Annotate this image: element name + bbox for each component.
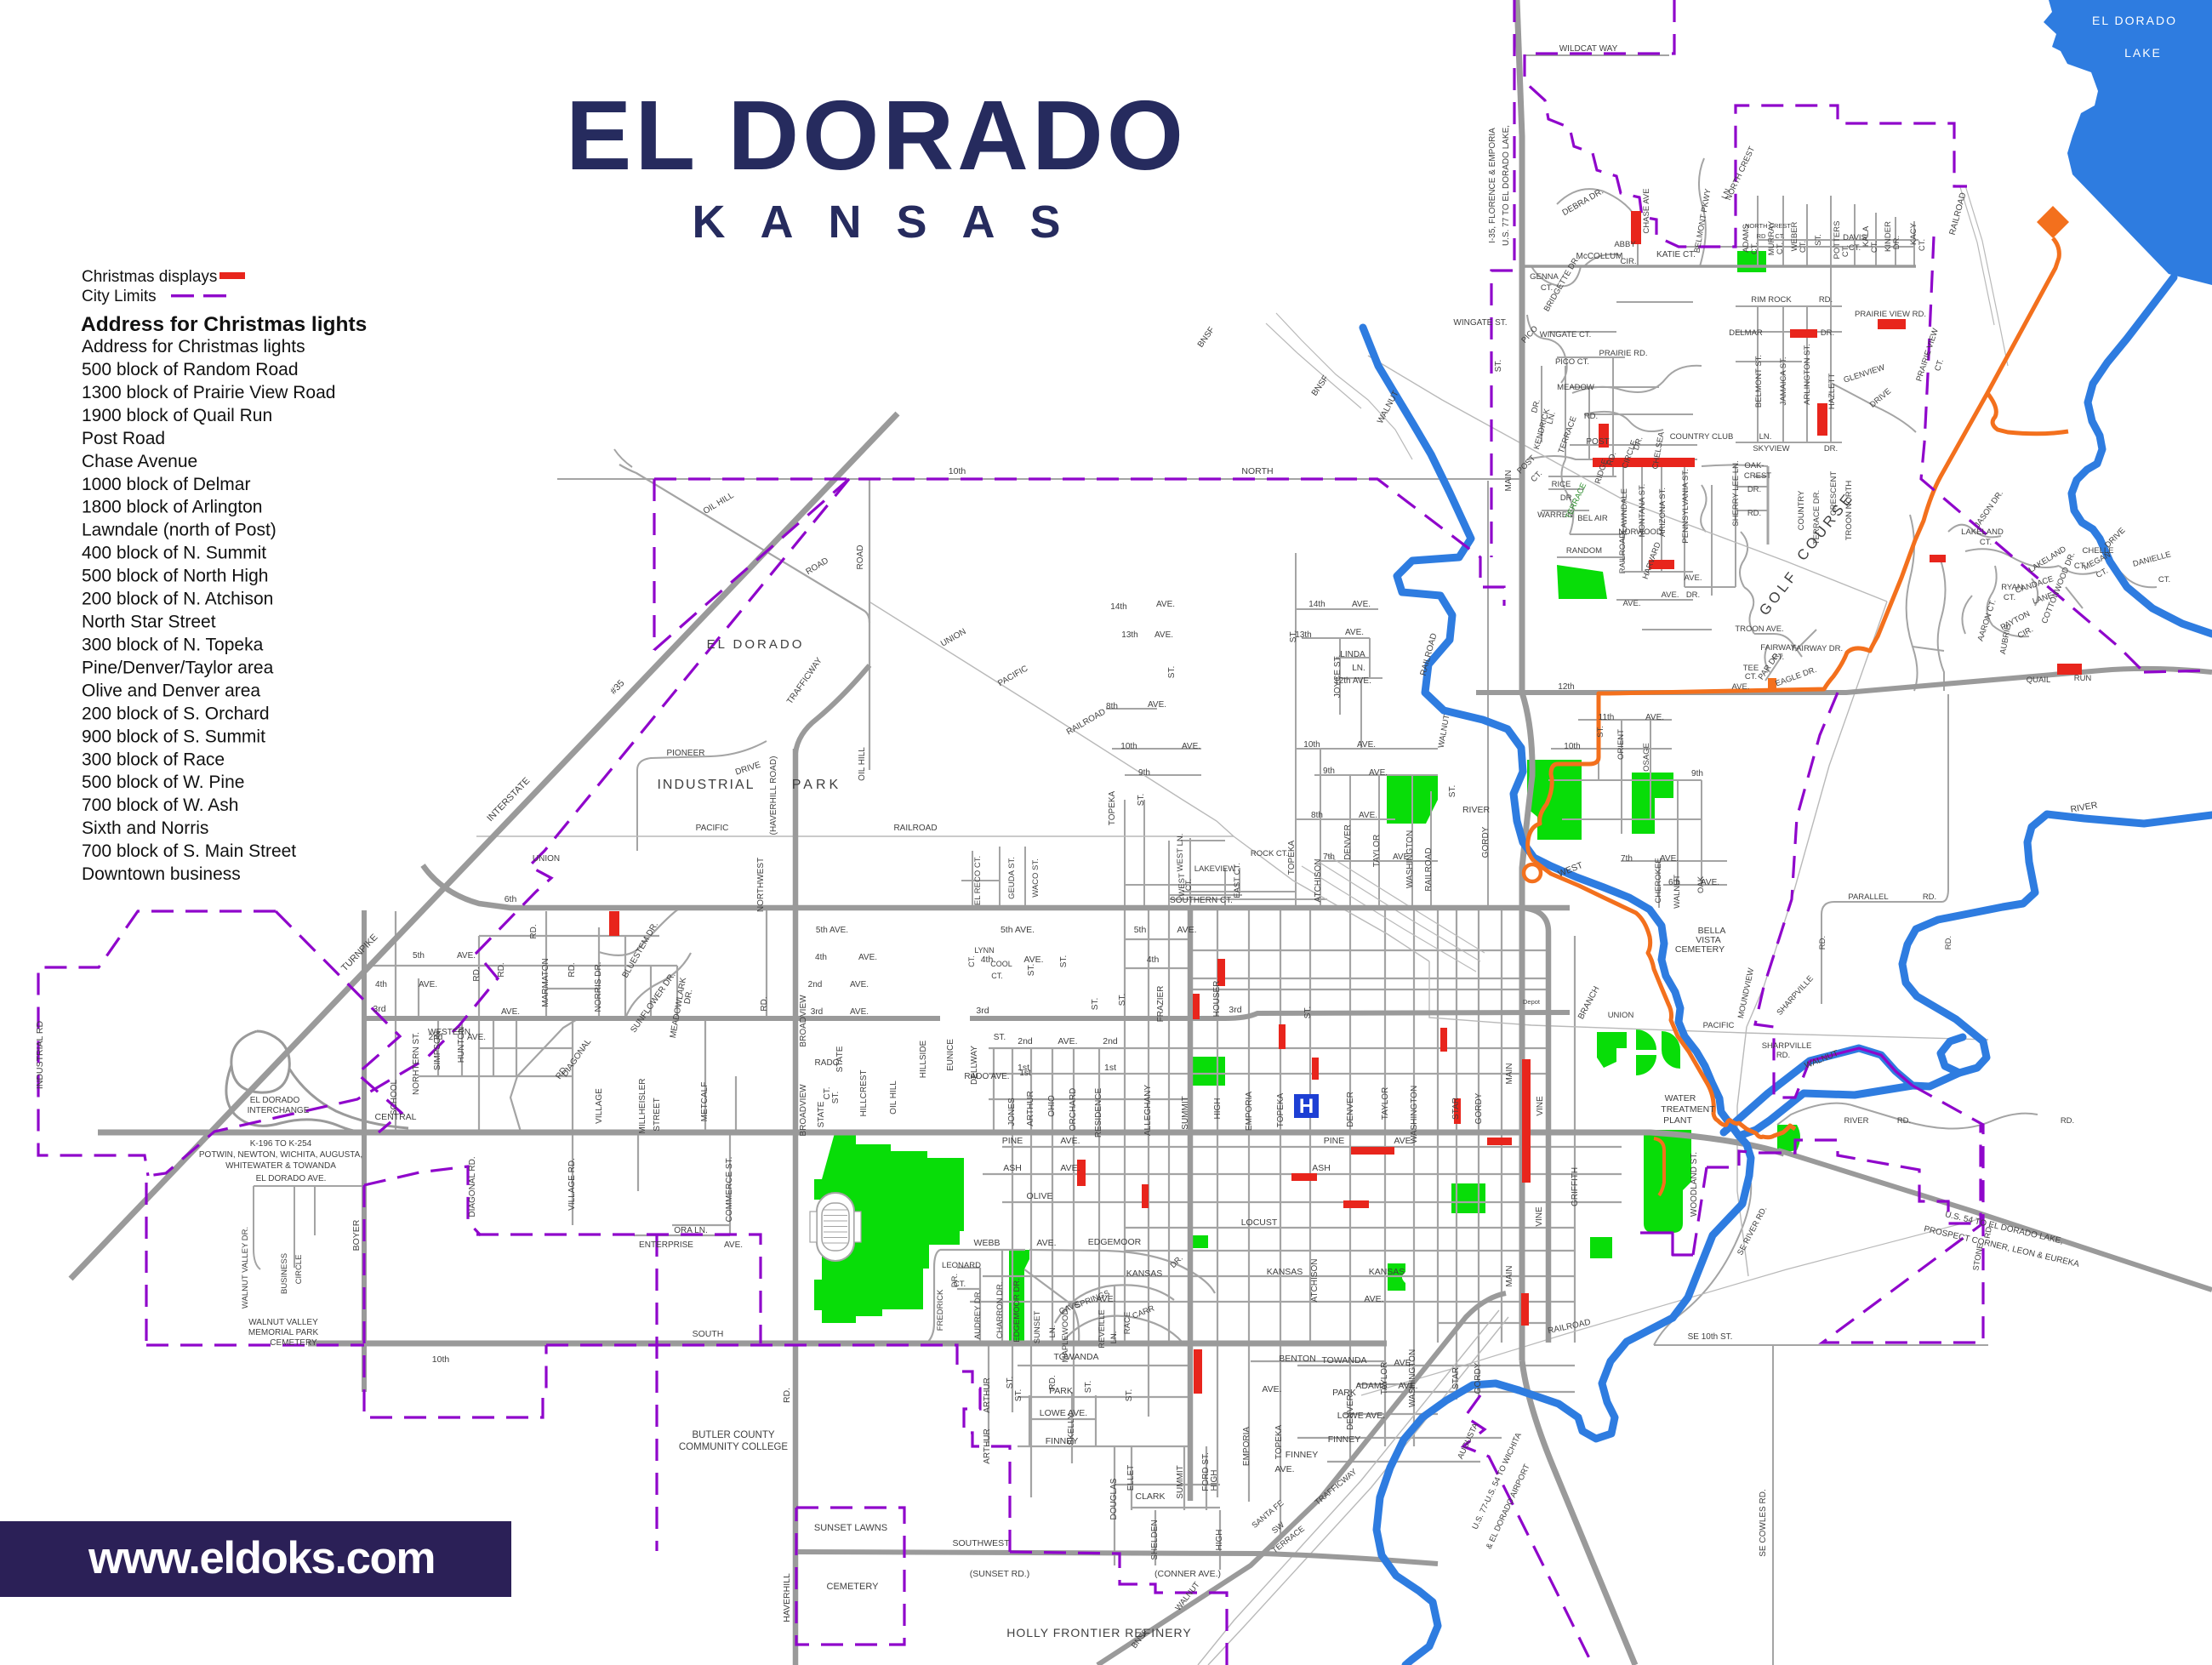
svg-text:ROAD: ROAD — [804, 556, 829, 577]
svg-text:VINE: VINE — [1535, 1206, 1544, 1227]
svg-text:Sixth and Norris: Sixth and Norris — [82, 818, 208, 838]
svg-text:EDGEMOOR: EDGEMOOR — [1088, 1237, 1142, 1247]
svg-text:AVE.: AVE. — [1352, 600, 1371, 609]
svg-text:10th: 10th — [1564, 742, 1580, 751]
svg-text:LEONARD: LEONARD — [942, 1261, 981, 1270]
svg-text:10th: 10th — [1303, 740, 1320, 750]
svg-text:1st: 1st — [1019, 1069, 1031, 1078]
svg-text:DR.: DR. — [1821, 328, 1834, 338]
svg-text:AVE.: AVE. — [1274, 1464, 1294, 1474]
svg-text:(HAVERHILL ROAD): (HAVERHILL ROAD) — [769, 756, 778, 835]
svg-text:SCHOOL: SCHOOL — [390, 1079, 399, 1115]
svg-text:ST.: ST. — [1494, 360, 1503, 372]
svg-text:CT.: CT. — [1841, 245, 1850, 257]
svg-text:DENVER: DENVER — [1343, 824, 1353, 860]
svg-text:CREST: CREST — [1744, 471, 1771, 481]
svg-text:1300 block of Prairie View Roa: 1300 block of Prairie View Road — [82, 383, 335, 402]
svg-text:HIGH: HIGH — [1215, 1530, 1224, 1551]
svg-text:PAR DR.: PAR DR. — [1757, 650, 1783, 681]
svg-text:AVE.: AVE. — [1262, 1384, 1281, 1394]
svg-text:RAILROAD: RAILROAD — [893, 824, 937, 833]
svg-text:EMPORIA: EMPORIA — [1242, 1427, 1251, 1466]
svg-text:AVE.: AVE. — [1685, 573, 1702, 583]
svg-text:CT.: CT. — [1541, 283, 1553, 293]
svg-text:CT.: CT. — [1750, 242, 1759, 254]
svg-text:JAMAICA ST.: JAMAICA ST. — [1779, 356, 1788, 405]
svg-text:4th: 4th — [1147, 955, 1160, 965]
svg-text:PRAIRIE RD.: PRAIRIE RD. — [1599, 349, 1647, 358]
svg-text:CT.: CT. — [1799, 241, 1808, 253]
svg-text:3rd: 3rd — [1229, 1005, 1241, 1015]
svg-text:LAKEVIEW: LAKEVIEW — [1194, 864, 1236, 874]
svg-text:COUNTRY CLUB: COUNTRY CLUB — [1670, 432, 1734, 442]
svg-text:HIGH: HIGH — [1210, 1470, 1219, 1491]
svg-text:EL RECO CT.: EL RECO CT. — [973, 856, 983, 905]
svg-text:COMMERCE ST.: COMMERCE ST. — [725, 1157, 734, 1223]
svg-text:GOLF: GOLF — [1756, 567, 1801, 619]
svg-text:2nd: 2nd — [808, 980, 823, 989]
svg-text:1800 block of Arlington: 1800 block of Arlington — [82, 498, 262, 517]
svg-text:RIVER: RIVER — [1462, 805, 1491, 815]
svg-text:CEMETERY: CEMETERY — [270, 1338, 317, 1348]
svg-text:BEL AIR: BEL AIR — [1577, 514, 1608, 523]
svg-text:TREATMENT: TREATMENT — [1661, 1104, 1715, 1115]
svg-text:1900 block of Quail Run: 1900 block of Quail Run — [82, 406, 272, 425]
svg-text:SUNSET LAWNS: SUNSET LAWNS — [814, 1523, 887, 1533]
svg-text:BELMONT ST.: BELMONT ST. — [1754, 355, 1764, 408]
svg-text:RD.: RD. — [1747, 509, 1761, 518]
svg-text:MILLHEISLER: MILLHEISLER — [638, 1078, 647, 1133]
svg-text:NORTHWEST: NORTHWEST — [756, 858, 766, 912]
svg-text:CT.: CT. — [1529, 469, 1544, 484]
svg-text:4th: 4th — [375, 980, 387, 989]
svg-text:3rd: 3rd — [373, 1004, 385, 1014]
svg-text:LAWNDALE: LAWNDALE — [1620, 488, 1629, 533]
svg-text:RD.: RD. — [782, 1388, 792, 1403]
svg-text:BRANCH: BRANCH — [1576, 985, 1602, 1021]
svg-text:RD.: RD. — [1897, 1116, 1911, 1126]
svg-text:3rd: 3rd — [976, 1006, 989, 1016]
svg-text:500 block of North High: 500 block of North High — [82, 567, 268, 586]
svg-text:HILLCREST: HILLCREST — [859, 1069, 869, 1116]
svg-text:OLIVE: OLIVE — [1027, 1191, 1053, 1201]
svg-text:PICO CT.: PICO CT. — [1555, 357, 1589, 367]
svg-text:2nd: 2nd — [429, 1033, 443, 1042]
svg-text:TAYLOR: TAYLOR — [1381, 1087, 1390, 1120]
svg-text:12th: 12th — [1558, 682, 1574, 692]
svg-text:ATCHISON: ATCHISON — [1314, 859, 1323, 903]
svg-text:TOWANDA: TOWANDA — [1321, 1355, 1366, 1366]
svg-text:TROON NORTH: TROON NORTH — [1844, 481, 1854, 541]
svg-text:(CONNER AVE.): (CONNER AVE.) — [1154, 1569, 1221, 1579]
svg-text:10th: 10th — [1120, 742, 1137, 751]
svg-text:OIL HILL: OIL HILL — [702, 491, 736, 516]
svg-text:SHARPVILLE: SHARPVILLE — [1775, 974, 1815, 1018]
svg-text:TERRACE DR.: TERRACE DR. — [1812, 490, 1821, 545]
svg-text:ROAD: ROAD — [856, 545, 865, 570]
svg-text:CLARK: CLARK — [1135, 1491, 1165, 1502]
svg-text:(SUNSET RD.): (SUNSET RD.) — [970, 1569, 1029, 1579]
svg-text:700 block of W. Ash: 700 block of W. Ash — [82, 795, 238, 815]
svg-text:CT.: CT. — [1933, 358, 1946, 373]
svg-text:6th: 6th — [1668, 878, 1680, 887]
svg-text:INTERCHANGE: INTERCHANGE — [248, 1106, 310, 1115]
svg-text:LN.: LN. — [1759, 432, 1772, 442]
svg-text:FINNEY: FINNEY — [1328, 1434, 1361, 1445]
svg-text:RIVER: RIVER — [2070, 800, 2099, 814]
svg-text:MEMORIAL PARK: MEMORIAL PARK — [248, 1328, 319, 1337]
svg-text:Pine/Denver/Taylor area: Pine/Denver/Taylor area — [82, 658, 274, 677]
svg-text:ST.: ST. — [1448, 785, 1457, 797]
svg-text:WACO ST.: WACO ST. — [1031, 858, 1040, 898]
svg-text:AVE.: AVE. — [850, 980, 869, 989]
svg-text:CHASE AVE: CHASE AVE — [1642, 188, 1651, 233]
svg-text:RAILROAD: RAILROAD — [1424, 847, 1434, 891]
svg-text:CHEROKEE: CHEROKEE — [1654, 858, 1663, 903]
svg-text:5th: 5th — [1134, 925, 1147, 935]
svg-text:DR.: DR. — [683, 989, 695, 1005]
svg-text:MEADOWLARK: MEADOWLARK — [669, 977, 688, 1039]
svg-text:11th: 11th — [1599, 713, 1615, 722]
svg-text:7th: 7th — [1323, 852, 1335, 862]
svg-text:RACE: RACE — [1123, 1312, 1132, 1334]
svg-text:ADAMS: ADAMS — [1355, 1381, 1387, 1391]
svg-text:AVE.: AVE. — [467, 1033, 486, 1042]
svg-text:GORDY: GORDY — [1474, 1362, 1483, 1394]
svg-text:WHITEWATER & TOWANDA: WHITEWATER & TOWANDA — [225, 1161, 336, 1171]
svg-text:2nd: 2nd — [1103, 1036, 1118, 1046]
svg-text:SHARPVILLE: SHARPVILLE — [1762, 1041, 1812, 1051]
svg-text:OIL HILL: OIL HILL — [858, 747, 867, 781]
svg-text:TRAFFICWAY: TRAFFICWAY — [1314, 1467, 1360, 1508]
svg-text:9th: 9th — [1138, 768, 1150, 778]
svg-text:SE 10th ST.: SE 10th ST. — [1688, 1332, 1733, 1342]
svg-text:RADO: RADO — [815, 1058, 840, 1068]
svg-text:RAILROAD: RAILROAD — [1618, 533, 1628, 574]
svg-text:HOLLY FRONTIER REFINERY: HOLLY FRONTIER REFINERY — [1006, 1626, 1191, 1639]
svg-text:DR.: DR. — [1892, 236, 1901, 249]
svg-text:TROON AVE.: TROON AVE. — [1735, 624, 1783, 634]
svg-text:LOWE AVE.: LOWE AVE. — [1040, 1408, 1087, 1418]
svg-text:COMMUNITY COLLEGE: COMMUNITY COLLEGE — [679, 1442, 789, 1452]
svg-text:BLUESTEM DR.: BLUESTEM DR. — [621, 921, 660, 980]
svg-text:AVE.: AVE. — [457, 951, 476, 961]
svg-text:RESIDENCE: RESIDENCE — [1094, 1088, 1103, 1138]
svg-text:ST.: ST. — [1059, 955, 1069, 967]
svg-text:EL DORADO: EL DORADO — [250, 1096, 300, 1105]
svg-text:TOPEKA: TOPEKA — [1276, 1092, 1286, 1127]
svg-text:DRIVE: DRIVE — [1868, 387, 1893, 410]
svg-text:ARLINGTON ST.: ARLINGTON ST. — [1803, 344, 1812, 405]
svg-text:SE COWLES RD.: SE COWLES RD. — [1759, 1489, 1768, 1556]
svg-text:SUNSET: SUNSET — [1033, 1311, 1042, 1344]
svg-text:BUTLER COUNTY: BUTLER COUNTY — [692, 1430, 774, 1440]
svg-text:AVE.: AVE. — [1357, 740, 1376, 750]
svg-text:DRIVE: DRIVE — [734, 761, 762, 778]
svg-text:CIRCLE: CIRCLE — [294, 1255, 304, 1285]
svg-text:5th: 5th — [413, 951, 425, 961]
svg-text:MARMATON: MARMATON — [541, 958, 550, 1006]
svg-text:Christmas displays: Christmas displays — [82, 268, 217, 286]
svg-text:ST.: ST. — [1596, 726, 1605, 738]
svg-text:Lawndale (north of Post): Lawndale (north of Post) — [82, 521, 276, 540]
svg-text:7th: 7th — [1621, 854, 1633, 864]
svg-text:OSAGE: OSAGE — [1642, 743, 1651, 772]
svg-text:KANSAS: KANSAS — [1267, 1267, 1303, 1277]
svg-text:PINE: PINE — [1002, 1136, 1023, 1146]
svg-text:OHIO: OHIO — [1047, 1095, 1057, 1117]
svg-text:14th: 14th — [1308, 600, 1325, 609]
svg-text:AVE.: AVE. — [1701, 878, 1719, 887]
svg-text:AVE.: AVE. — [1369, 768, 1388, 778]
svg-text:AVE.: AVE. — [1036, 1238, 1056, 1248]
svg-text:HUNTON: HUNTON — [457, 1027, 466, 1063]
svg-text:PRAIRIE VIEW RD.: PRAIRIE VIEW RD. — [1855, 310, 1926, 319]
svg-text:DR.: DR. — [1632, 436, 1645, 452]
svg-text:AVE.: AVE. — [1154, 630, 1173, 640]
svg-text:DIAGONAL RD.: DIAGONAL RD. — [468, 1156, 477, 1217]
svg-text:AVE.: AVE. — [1177, 925, 1196, 935]
svg-text:SOUTHWEST: SOUTHWEST — [952, 1538, 1010, 1548]
svg-text:PARK: PARK — [792, 778, 841, 792]
svg-text:AVE.: AVE. — [1623, 599, 1641, 608]
svg-text:POST: POST — [1586, 437, 1609, 447]
svg-text:AVE.: AVE. — [1662, 590, 1679, 600]
svg-text:WILDCAT WAY: WILDCAT WAY — [1559, 44, 1618, 54]
svg-text:ARTHUR: ARTHUR — [983, 1377, 992, 1412]
svg-text:BELMONT PKWY: BELMONT PKWY — [1692, 187, 1713, 254]
svg-text:700 block of S. Main Street: 700 block of S. Main Street — [82, 841, 296, 861]
svg-text:PARALLEL: PARALLEL — [1848, 892, 1888, 902]
svg-text:INDUSTRIAL: INDUSTRIAL — [657, 778, 755, 792]
svg-text:WEBB: WEBB — [974, 1238, 1001, 1248]
svg-text:ST.: ST. — [1289, 630, 1298, 642]
svg-text:ST.: ST. — [1084, 1381, 1093, 1393]
svg-text:COOL: COOL — [990, 960, 1012, 968]
svg-text:EDGEMOOR DR.: EDGEMOOR DR. — [1012, 1278, 1022, 1342]
svg-text:ELLET: ELLET — [1126, 1465, 1136, 1491]
svg-text:RICE: RICE — [1552, 480, 1571, 489]
svg-text:ST.: ST. — [1167, 666, 1177, 678]
svg-text:200 block of N. Atchison: 200 block of N. Atchison — [82, 590, 273, 609]
svg-text:WATER: WATER — [1665, 1093, 1696, 1103]
svg-text:5th AVE.: 5th AVE. — [1001, 925, 1035, 935]
svg-text:DELMAR: DELMAR — [1729, 328, 1763, 338]
svg-text:SHELDEN: SHELDEN — [1150, 1520, 1160, 1560]
svg-text:RD.: RD. — [567, 962, 577, 977]
svg-text:ST.: ST. — [1814, 234, 1823, 246]
svg-text:CT.: CT. — [1918, 239, 1927, 251]
svg-text:I-35, FLORENCE & EMPORIA: I-35, FLORENCE & EMPORIA — [1488, 128, 1497, 243]
svg-text:RD.: RD. — [2061, 1116, 2074, 1126]
svg-text:WALNUT: WALNUT — [1437, 714, 1452, 749]
svg-text:FINNEY: FINNEY — [1046, 1436, 1079, 1446]
svg-text:RD.: RD. — [1923, 892, 1936, 902]
svg-text:WINGATE ST.: WINGATE ST. — [1453, 318, 1507, 328]
svg-text:AVE.: AVE. — [1732, 682, 1750, 692]
svg-text:CT.: CT. — [967, 955, 976, 967]
svg-text:Downtown business: Downtown business — [82, 864, 241, 884]
svg-text:500 block of Random Road: 500 block of Random Road — [82, 360, 299, 379]
svg-text:METCALF: METCALF — [700, 1082, 710, 1122]
svg-text:ST.: ST. — [994, 1033, 1006, 1042]
svg-text:GEUDA ST.: GEUDA ST. — [1007, 857, 1017, 899]
svg-text:NORHTERN ST.: NORHTERN ST. — [412, 1032, 421, 1095]
svg-text:CEMETERY: CEMETERY — [1675, 944, 1725, 955]
svg-text:CT.: CT. — [2004, 593, 2015, 602]
svg-text:PACIFIC: PACIFIC — [996, 664, 1029, 688]
svg-text:AVE.: AVE. — [1359, 811, 1377, 820]
svg-text:AVE.: AVE. — [1096, 1294, 1115, 1304]
svg-text:JONES: JONES — [1007, 1098, 1017, 1126]
svg-text:ST.: ST. — [1027, 964, 1036, 976]
svg-text:ST.: ST. — [1118, 994, 1127, 1006]
svg-text:RD.: RD. — [760, 996, 769, 1011]
svg-text:Address for Christmas lights: Address for Christmas lights — [81, 313, 367, 336]
svg-text:AVE.: AVE. — [858, 953, 877, 962]
svg-text:PACIFIC: PACIFIC — [1703, 1021, 1735, 1030]
svg-text:ORCHARD: ORCHARD — [1069, 1088, 1078, 1132]
svg-text:H: H — [1299, 1095, 1314, 1118]
svg-text:ARTHUR: ARTHUR — [983, 1428, 992, 1463]
svg-text:TAYLOR: TAYLOR — [1372, 835, 1382, 868]
svg-text:AVE.: AVE. — [1182, 742, 1200, 751]
svg-text:RD.: RD. — [1818, 936, 1827, 949]
svg-text:QUAIL: QUAIL — [2027, 676, 2051, 685]
svg-text:ATCHISON: ATCHISON — [1310, 1259, 1320, 1303]
svg-text:6th: 6th — [505, 894, 517, 904]
svg-text:BNSF: BNSF — [1196, 325, 1217, 349]
svg-text:WOODLAND ST.: WOODLAND ST. — [1690, 1152, 1699, 1217]
svg-text:& EL DORADO AIRPORT: & EL DORADO AIRPORT — [1485, 1463, 1532, 1550]
svg-text:UNION: UNION — [533, 854, 560, 864]
svg-text:AVE.: AVE. — [1660, 854, 1679, 864]
svg-text:DENVER: DENVER — [1346, 1092, 1355, 1127]
svg-text:LAKELAND: LAKELAND — [1961, 527, 2004, 537]
svg-text:HILLSIDE: HILLSIDE — [919, 1040, 928, 1078]
svg-text:INDUSTRIAL RD: INDUSTRIAL RD — [35, 1021, 45, 1090]
svg-text:8th: 8th — [1311, 811, 1323, 820]
svg-text:ASH: ASH — [1003, 1163, 1022, 1173]
svg-text:AUDREY DR.: AUDREY DR. — [973, 1290, 983, 1339]
svg-text:Address for Christmas lights: Address for Christmas lights — [82, 337, 305, 356]
svg-text:U.S. 77 TO EL DORADO LAKE: U.S. 77 TO EL DORADO LAKE, — [1502, 125, 1511, 246]
svg-text:300 block of Race: 300 block of Race — [82, 750, 225, 769]
svg-text:WEST LN.: WEST LN. — [1176, 834, 1185, 872]
svg-text:NORRIS DR.: NORRIS DR. — [594, 962, 603, 1012]
svg-text:K-196 TO K-254: K-196 TO K-254 — [250, 1139, 312, 1149]
svg-text:CIR.: CIR. — [2016, 624, 2035, 641]
svg-text:CT.: CT. — [954, 1280, 966, 1289]
svg-text:9th: 9th — [1323, 767, 1335, 776]
svg-text:DANIELLE: DANIELLE — [2132, 550, 2172, 569]
svg-text:BROADVIEW: BROADVIEW — [799, 995, 808, 1047]
svg-text:OIL HILL: OIL HILL — [889, 1081, 898, 1115]
svg-text:SKYVIEW: SKYVIEW — [1753, 444, 1789, 453]
svg-text:900 block of S. Summit: 900 block of S. Summit — [82, 727, 265, 746]
svg-text:AVE.: AVE. — [501, 1007, 520, 1017]
svg-text:AVE.: AVE. — [1060, 1163, 1080, 1173]
svg-text:CT.: CT. — [1776, 242, 1785, 254]
svg-text:UNION: UNION — [939, 627, 967, 649]
svg-text:WALNUT: WALNUT — [1804, 1049, 1840, 1071]
svg-text:HAZLETT: HAZLETT — [1827, 373, 1837, 409]
svg-text:MAIN: MAIN — [1505, 1266, 1514, 1287]
svg-text:AVE.: AVE. — [1058, 1036, 1077, 1046]
svg-text:KATIE CT.: KATIE CT. — [1656, 250, 1696, 259]
svg-text:AUGUSTA: AUGUSTA — [1456, 1422, 1480, 1461]
svg-text:EUNICE: EUNICE — [946, 1039, 955, 1071]
svg-text:DEBRA DR.: DEBRA DR. — [1561, 187, 1605, 218]
svg-text:CT.: CT. — [1849, 243, 1861, 253]
svg-text:ST.: ST. — [1014, 1389, 1023, 1401]
svg-text:500 block of W. Pine: 500 block of W. Pine — [82, 773, 244, 792]
svg-text:ASH: ASH — [1312, 1163, 1331, 1173]
svg-text:9th: 9th — [1691, 769, 1703, 778]
svg-text:KANSAS: KANSAS — [1369, 1267, 1405, 1277]
svg-text:CT.: CT. — [2158, 575, 2170, 584]
svg-text:1000 block of Delmar: 1000 block of Delmar — [82, 475, 250, 494]
svg-text:RD.: RD. — [1944, 936, 1953, 949]
svg-text:ST.: ST. — [831, 1092, 841, 1103]
svg-text:POTWIN, NEWTON, WICHITA, AU: POTWIN, NEWTON, WICHITA, AUGUSTA, — [199, 1150, 362, 1160]
svg-text:RANDOM: RANDOM — [1566, 546, 1602, 556]
svg-text:CHELLE: CHELLE — [2083, 546, 2114, 556]
svg-text:Chase Avenue: Chase Avenue — [82, 452, 197, 471]
svg-text:BENTON: BENTON — [1279, 1354, 1316, 1364]
svg-text:CT.: CT. — [1870, 241, 1879, 253]
svg-text:400 block of N. Summit: 400 block of N. Summit — [82, 544, 266, 563]
svg-text:NORTH: NORTH — [1241, 466, 1273, 476]
svg-text:5th AVE.: 5th AVE. — [816, 926, 848, 935]
svg-text:1st: 1st — [1104, 1063, 1116, 1073]
svg-text:LN.: LN. — [1545, 411, 1557, 425]
svg-text:LYNN: LYNN — [974, 946, 994, 955]
svg-text:FAIRWAY DR.: FAIRWAY DR. — [1792, 644, 1843, 653]
svg-text:HOUSER: HOUSER — [1212, 981, 1222, 1018]
svg-text:GRIFFITH: GRIFFITH — [1571, 1167, 1580, 1206]
svg-text:CT.: CT. — [2095, 567, 2110, 580]
svg-text:CT.: CT. — [991, 972, 1003, 980]
svg-text:HAVERHILL: HAVERHILL — [782, 1573, 792, 1622]
svg-text:PINE: PINE — [1324, 1136, 1345, 1146]
svg-text:ARTHUR: ARTHUR — [1026, 1091, 1035, 1126]
svg-text:AVE.: AVE. — [1645, 713, 1664, 722]
svg-text:FINNEY: FINNEY — [1286, 1450, 1319, 1460]
svg-text:#35: #35 — [608, 678, 626, 697]
svg-text:RAILROAD: RAILROAD — [1948, 191, 1969, 236]
svg-text:RD.: RD. — [472, 966, 482, 981]
svg-text:SOUTH: SOUTH — [693, 1329, 724, 1339]
svg-text:VILLAGE: VILLAGE — [595, 1088, 604, 1124]
svg-text:TURNPIKE: TURNPIKE — [339, 932, 379, 973]
svg-text:GLENVIEW: GLENVIEW — [1843, 363, 1886, 385]
svg-text:3rd: 3rd — [811, 1007, 823, 1017]
svg-text:DR.: DR. — [1747, 485, 1761, 494]
svg-text:BOYER: BOYER — [351, 1219, 362, 1251]
svg-text:RD.: RD. — [529, 924, 539, 938]
svg-text:4th: 4th — [815, 953, 827, 962]
svg-text:COUNTRY: COUNTRY — [1797, 490, 1806, 530]
svg-text:RYAN: RYAN — [2001, 583, 2023, 592]
svg-text:WALNUT: WALNUT — [1376, 390, 1400, 425]
svg-text:AVE.: AVE. — [1156, 600, 1175, 609]
svg-text:TERRACE: TERRACE — [1557, 415, 1579, 454]
svg-text:RIVER: RIVER — [1844, 1116, 1868, 1126]
svg-text:ST.: ST. — [1137, 794, 1146, 806]
svg-text:JOYCE ST.: JOYCE ST. — [1333, 655, 1343, 699]
svg-text:CARR: CARR — [1132, 1303, 1156, 1320]
